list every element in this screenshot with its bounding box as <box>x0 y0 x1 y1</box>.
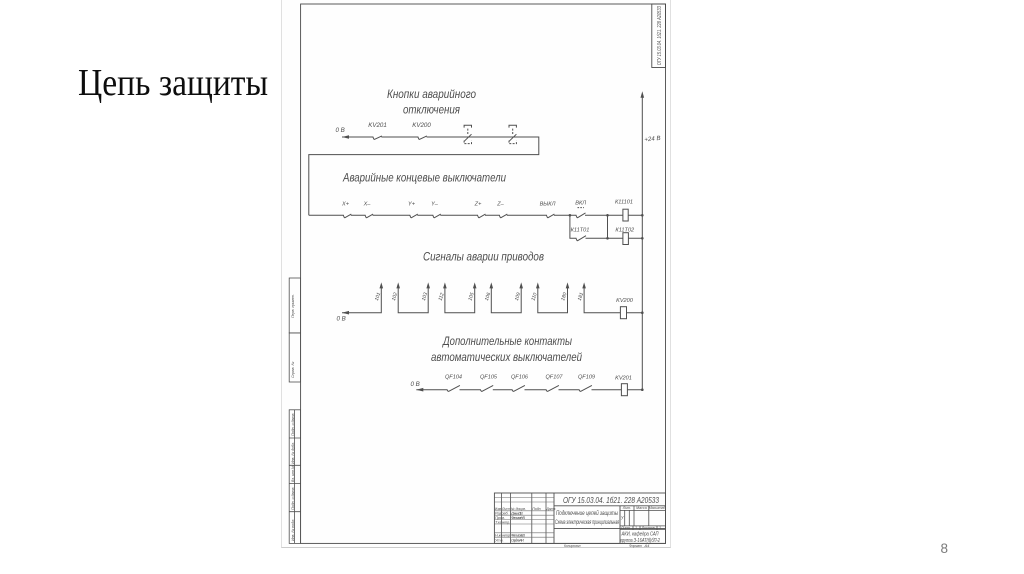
svg-text:Y+: Y+ <box>408 201 416 207</box>
svg-text:Масса: Масса <box>636 506 647 510</box>
svg-text:Z+: Z+ <box>474 201 482 207</box>
svg-text:QF109: QF109 <box>578 374 595 380</box>
svg-text:у: у <box>620 515 624 520</box>
svg-text:QF106: QF106 <box>511 374 529 380</box>
svg-text:KV201: KV201 <box>615 376 632 382</box>
svg-text:Формат: Формат <box>629 543 643 548</box>
svg-text:KV200: KV200 <box>412 122 431 129</box>
svg-text:Изм: Изм <box>495 507 502 511</box>
svg-text:Подп. и дата: Подп. и дата <box>291 414 295 437</box>
svg-text:К11101: К11101 <box>615 200 633 206</box>
svg-text:Инв. № дубл.: Инв. № дубл. <box>291 442 295 464</box>
svg-text:Инв. № подл.: Инв. № подл. <box>291 519 295 541</box>
svg-text:Пров.: Пров. <box>495 516 505 520</box>
svg-text:ВКЛ: ВКЛ <box>575 200 586 206</box>
svg-text:Перв. примен.: Перв. примен. <box>291 294 295 318</box>
svg-text:автоматических выключателей: автоматических выключателей <box>431 352 583 364</box>
svg-text:Н.контр.: Н.контр. <box>495 534 511 538</box>
svg-text:К11Т01: К11Т01 <box>571 227 590 233</box>
svg-text:Т.контр.: Т.контр. <box>495 521 510 525</box>
svg-text:Копировал: Копировал <box>564 543 581 548</box>
svg-text:ОГУ 15.03.04. 1б21. 228 А20533: ОГУ 15.03.04. 1б21. 228 А20533 <box>657 6 663 65</box>
svg-text:Кнопки аварийного: Кнопки аварийного <box>387 89 477 101</box>
svg-text:Дополнительные контакты: Дополнительные контакты <box>441 336 572 348</box>
svg-text:Подключение цепей защиты: Подключение цепей защиты <box>556 510 618 517</box>
svg-text:№ докум.: № докум. <box>511 507 526 511</box>
svg-text:1: 1 <box>659 526 661 530</box>
svg-text:Фетисов Е.В.: Фетисов Е.В. <box>511 534 525 538</box>
svg-text:QF105: QF105 <box>480 374 498 380</box>
svg-text:0 В: 0 В <box>337 316 346 323</box>
svg-text:Утв.: Утв. <box>495 539 504 543</box>
svg-text:Y–: Y– <box>431 201 439 207</box>
svg-text:Фетисов Н.В.: Фетисов Н.В. <box>511 516 525 520</box>
svg-text:ВЫКЛ: ВЫКЛ <box>540 201 556 207</box>
svg-text:Сигналы аварии приводов: Сигналы аварии приводов <box>423 252 544 264</box>
svg-text:отключения: отключения <box>403 105 460 117</box>
svg-text:X+: X+ <box>341 201 350 207</box>
svg-text:Z–: Z– <box>496 201 504 207</box>
svg-text:Лист: Лист <box>501 507 511 511</box>
svg-text:KV201: KV201 <box>368 122 387 129</box>
svg-text:KV200: KV200 <box>616 298 634 304</box>
svg-text:Лист: Лист <box>620 526 630 530</box>
svg-text:Подп.: Подп. <box>532 507 541 511</box>
svg-text:Аварийные концевые выключатели: Аварийные концевые выключатели <box>342 173 506 185</box>
svg-text:Сердюк А.И.: Сердюк А.И. <box>511 539 524 543</box>
svg-text:X–: X– <box>363 201 372 207</box>
svg-text:А4: А4 <box>644 543 651 548</box>
svg-text:QF104: QF104 <box>445 374 462 380</box>
svg-text:Вз. инв.№: Вз. инв.№ <box>291 465 295 482</box>
svg-text:АКИ, кафедра САП: АКИ, кафедра САП <box>621 532 659 538</box>
svg-text:Дикун Д.В.: Дикун Д.В. <box>510 512 523 516</box>
svg-text:Дата: Дата <box>545 507 555 511</box>
svg-text:Справ. №: Справ. № <box>291 362 295 378</box>
svg-text:Лит.: Лит. <box>622 506 631 510</box>
svg-text:Разраб.: Разраб. <box>495 512 509 516</box>
svg-text:+24 В: +24 В <box>644 135 661 144</box>
svg-text:QF107: QF107 <box>545 374 563 380</box>
svg-text:0 В: 0 В <box>411 381 420 388</box>
svg-text:Подп. и дата: Подп. и дата <box>291 488 295 511</box>
svg-text:Масштаб: Масштаб <box>649 506 667 510</box>
svg-text:Листов: Листов <box>641 526 655 530</box>
svg-text:Схема электрическая принципиал: Схема электрическая принципиальная <box>555 519 619 526</box>
svg-text:1: 1 <box>635 526 637 530</box>
svg-text:К11Т02: К11Т02 <box>615 227 635 233</box>
svg-text:ОГУ 15.03.04. 1б21. 228 А2053: ОГУ 15.03.04. 1б21. 228 А20533 <box>563 496 659 505</box>
svg-text:0 В: 0 В <box>336 127 345 134</box>
